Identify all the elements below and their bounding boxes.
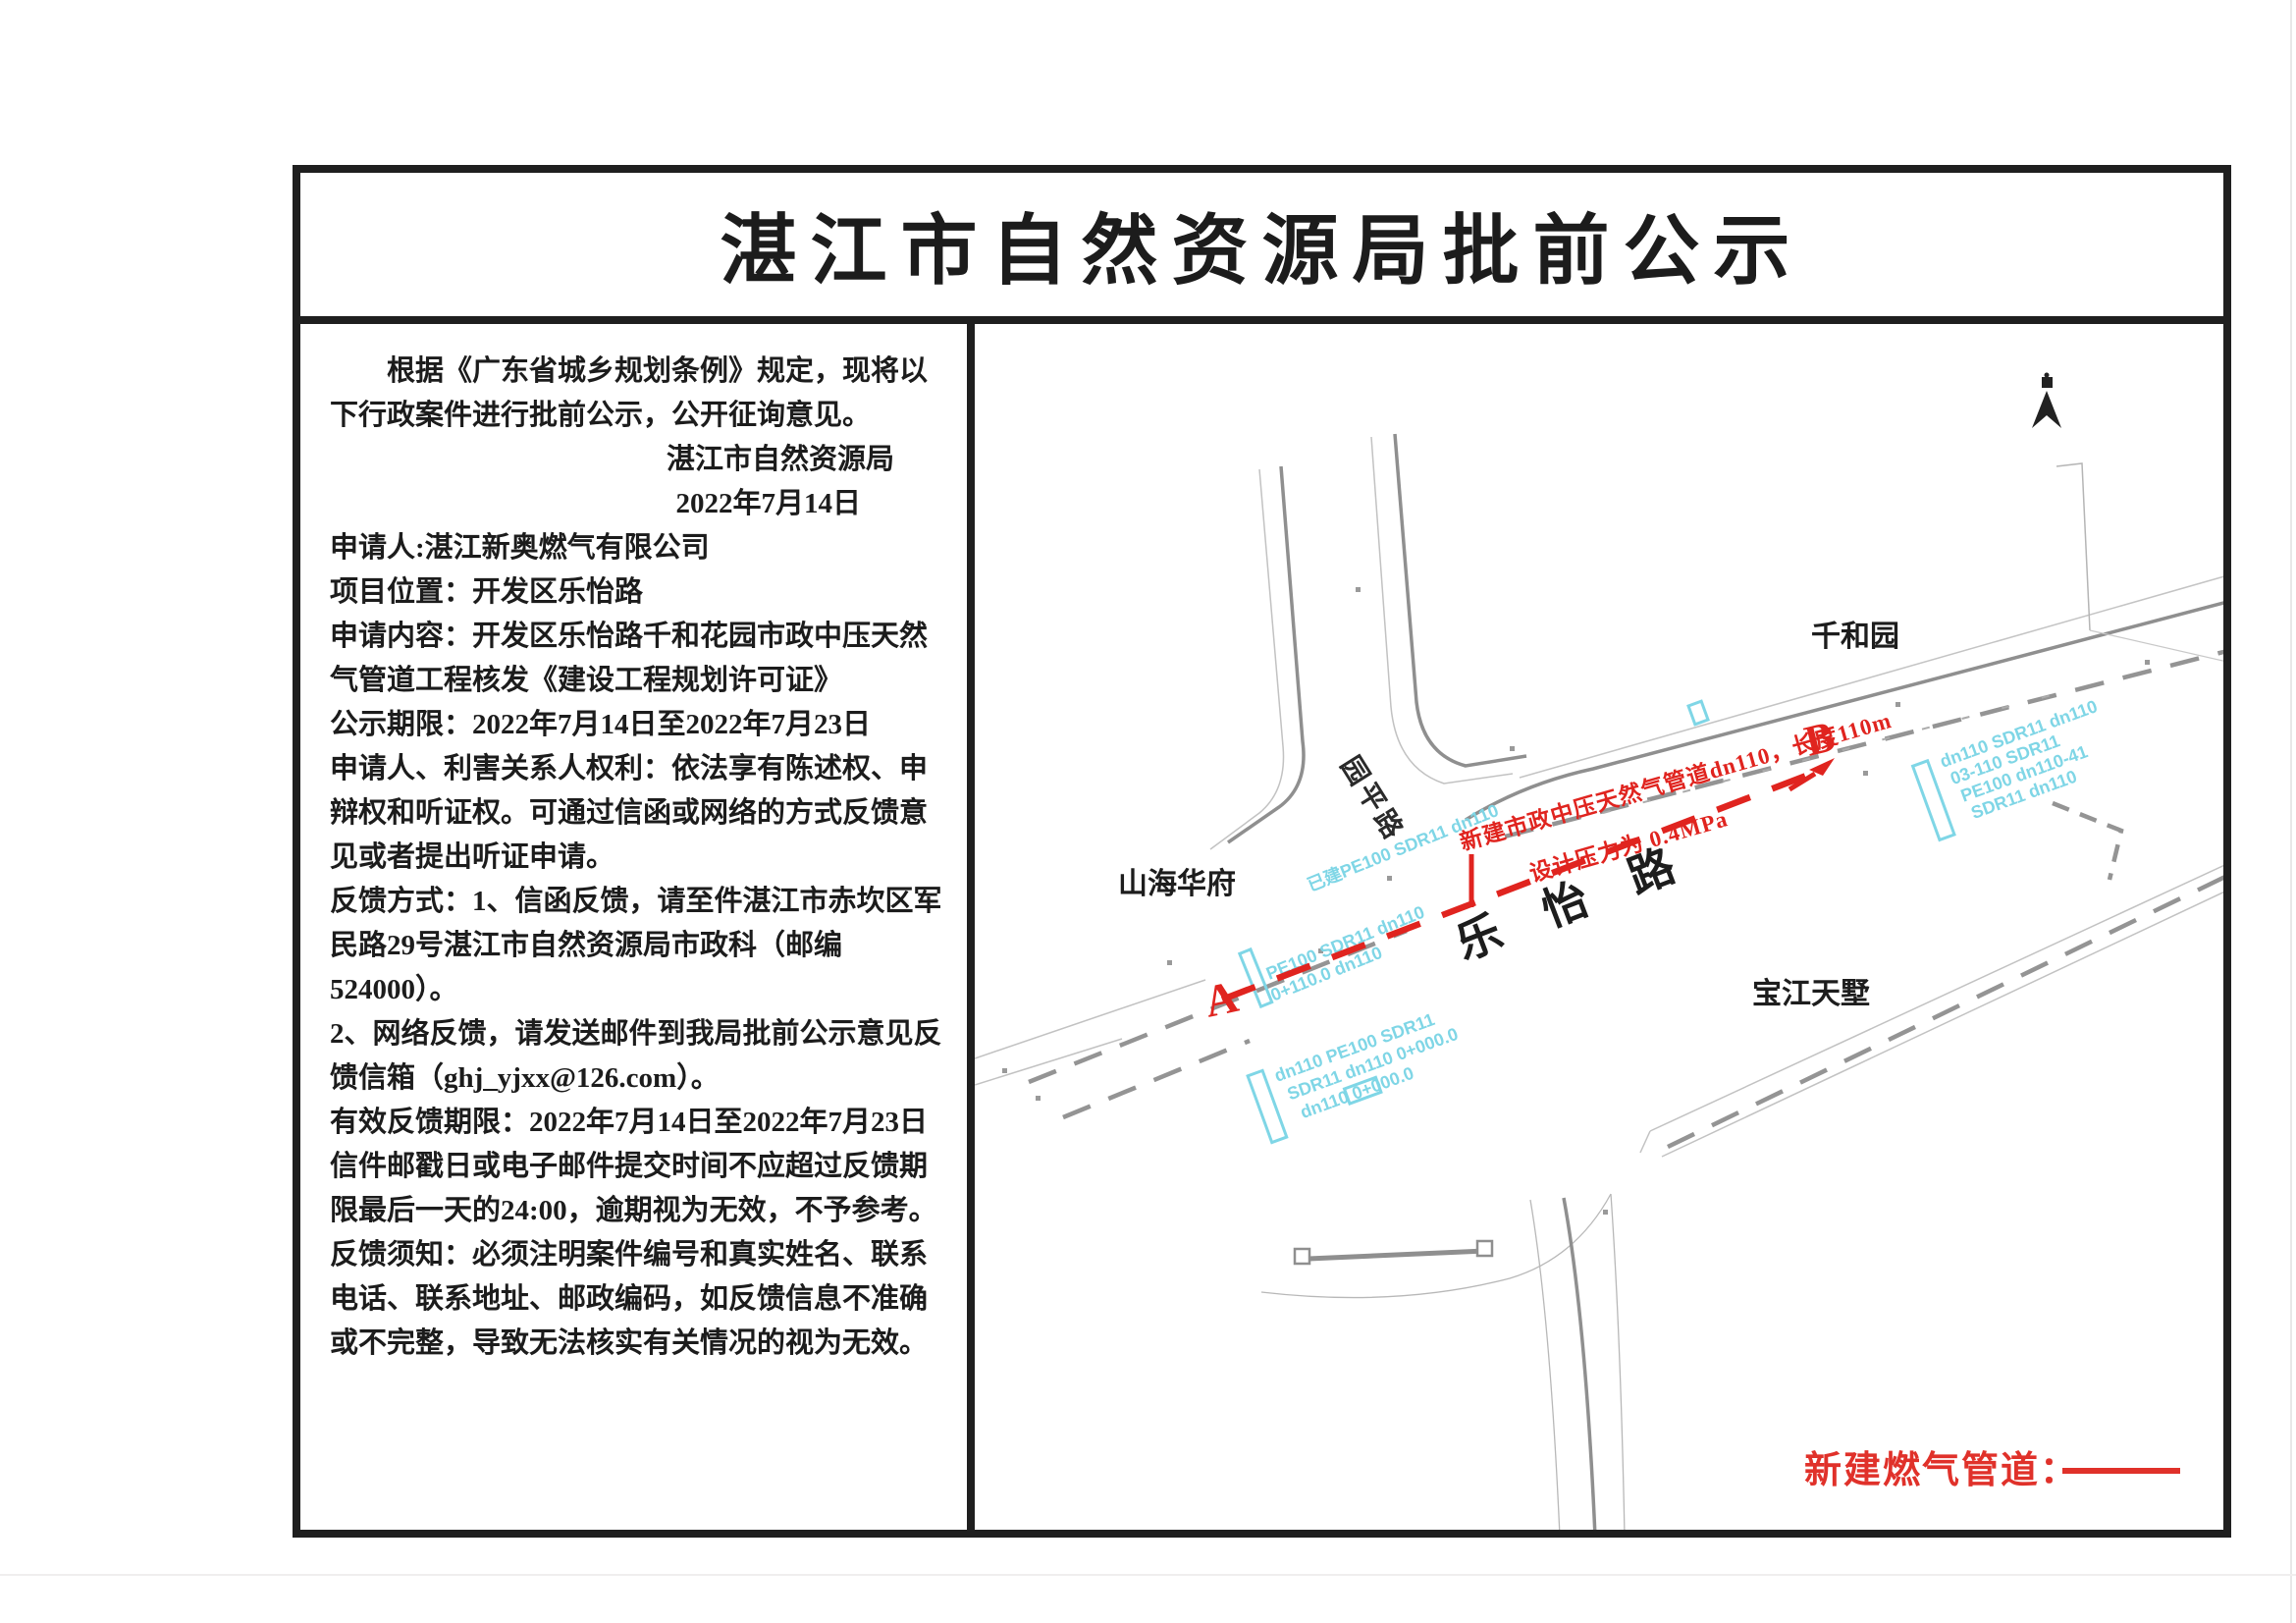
road-centerline — [1668, 874, 2223, 1147]
road-edge — [1228, 466, 1304, 842]
site-map: 已建PE100 SDR11 dn110 PE100 SDR11 dn110 0+… — [975, 324, 2223, 1530]
page-edge — [0, 1574, 2296, 1576]
existing-pipe-cluster-a: PE100 SDR11 dn110 0+110.0 dn110 — [1240, 884, 1435, 1010]
road-edge — [1395, 434, 1526, 766]
label-qianheyuan: 千和园 — [1811, 621, 1899, 653]
notice-issuer: 湛江市自然资源局 — [330, 438, 951, 482]
label-baojiangtianshu: 宝江天墅 — [1752, 977, 1870, 1010]
notice-period: 公示期限：2022年7月14日至2022年7月23日 — [330, 703, 951, 747]
north-arrow-icon — [2032, 373, 2061, 429]
road-edge — [1520, 574, 2223, 778]
existing-pipe-cluster-a2: dn110 PE100 SDR11 SDR11 dn110 0+000.0 dn… — [1248, 1003, 1470, 1142]
road-edge — [1530, 1200, 1560, 1530]
notice-text-panel: 根据《广东省城乡规划条例》规定，现将以下行政案件进行批前公示，公开征询意见。 湛… — [300, 324, 975, 1530]
road-centerline — [1063, 1041, 1250, 1117]
road-edge — [1611, 1194, 1625, 1530]
curb-cap — [1477, 1241, 1492, 1256]
legend-label: 新建燃气管道： — [1804, 1450, 2079, 1491]
legend: 新建燃气管道： — [1804, 1450, 2180, 1491]
existing-pipe-annotations: 已建PE100 SDR11 dn110 PE100 SDR11 dn110 0+… — [1240, 696, 2121, 1142]
notice-rights: 申请人、利害关系人权利：依法享有陈述权、申辩权和听证权。可通过信函或网络的方式反… — [330, 747, 951, 880]
existing-pipe-symbol — [1688, 701, 1708, 725]
road-centerline-corner — [2053, 803, 2121, 880]
title-row: 湛江市自然资源局批前公示 — [300, 173, 2223, 324]
notice-content: 申请内容：开发区乐怡路千和花园市政中压天然气管道工程核发《建设工程规划许可证》 — [330, 615, 951, 703]
notice-frame: 湛江市自然资源局批前公示 根据《广东省城乡规划条例》规定，现将以下行政案件进行批… — [293, 165, 2231, 1538]
road-edge — [1662, 889, 2223, 1157]
curb-line — [1308, 1251, 1485, 1259]
pipe-start-marker: A — [1200, 971, 1242, 1027]
notice-intro: 根据《广东省城乡规划条例》规定，现将以下行政案件进行批前公示，公开征询意见。 — [330, 350, 951, 438]
label-shanhaihuafu: 山海华府 — [1118, 867, 1236, 900]
notice-feedback-mail: 反馈方式：1、信函反馈，请至件湛江市赤坎区军民路29号湛江市自然资源局市政科（邮… — [330, 880, 951, 1012]
building-outline — [2090, 630, 2223, 663]
page-edge — [2290, 0, 2292, 1623]
label-side-road: 园平路 — [1334, 751, 1411, 847]
sidewalk-curve — [1261, 1194, 1611, 1298]
page-title: 湛江市自然资源局批前公示 — [720, 189, 1803, 299]
content-row: 根据《广东省城乡规划条例》规定，现将以下行政案件进行批前公示，公开征询意见。 湛… — [300, 324, 2223, 1530]
notice-valid-period: 有效反馈期限：2022年7月14日至2022年7月23日 — [330, 1101, 951, 1145]
notice-location: 项目位置：开发区乐怡路 — [330, 570, 951, 615]
road-edge — [975, 1039, 1122, 1085]
road-edge — [1650, 862, 2223, 1131]
curb-cap — [1295, 1249, 1309, 1264]
road-edge — [1371, 437, 1513, 784]
road-linework — [975, 434, 2223, 1530]
existing-pipe-symbol — [1240, 949, 1272, 1006]
public-notice-page: 湛江市自然资源局批前公示 根据《广东省城乡规划条例》规定，现将以下行政案件进行批… — [0, 0, 2296, 1623]
road-edge — [975, 980, 1205, 1058]
notice-applicant: 申请人:湛江新奥燃气有限公司 — [330, 526, 951, 570]
road-edge — [1640, 1131, 1650, 1153]
site-map-panel: 已建PE100 SDR11 dn110 PE100 SDR11 dn110 0+… — [975, 324, 2223, 1530]
notice-requirement-note: 反馈须知：必须注明案件编号和真实姓名、联系电话、联系地址、邮政编码，如反馈信息不… — [330, 1233, 951, 1366]
notice-issue-date: 2022年7月14日 — [330, 482, 951, 526]
road-edge — [1210, 469, 1284, 849]
notice-feedback-online: 2、网络反馈，请发送邮件到我局批前公示意见反馈信箱（ghj_yjxx@126.c… — [330, 1012, 951, 1101]
notice-deadline-note: 信件邮戳日或电子邮件提交时间不应超过反馈期限最后一天的24:00，逾期视为无效，… — [330, 1145, 951, 1233]
building-outline — [2056, 463, 2090, 630]
